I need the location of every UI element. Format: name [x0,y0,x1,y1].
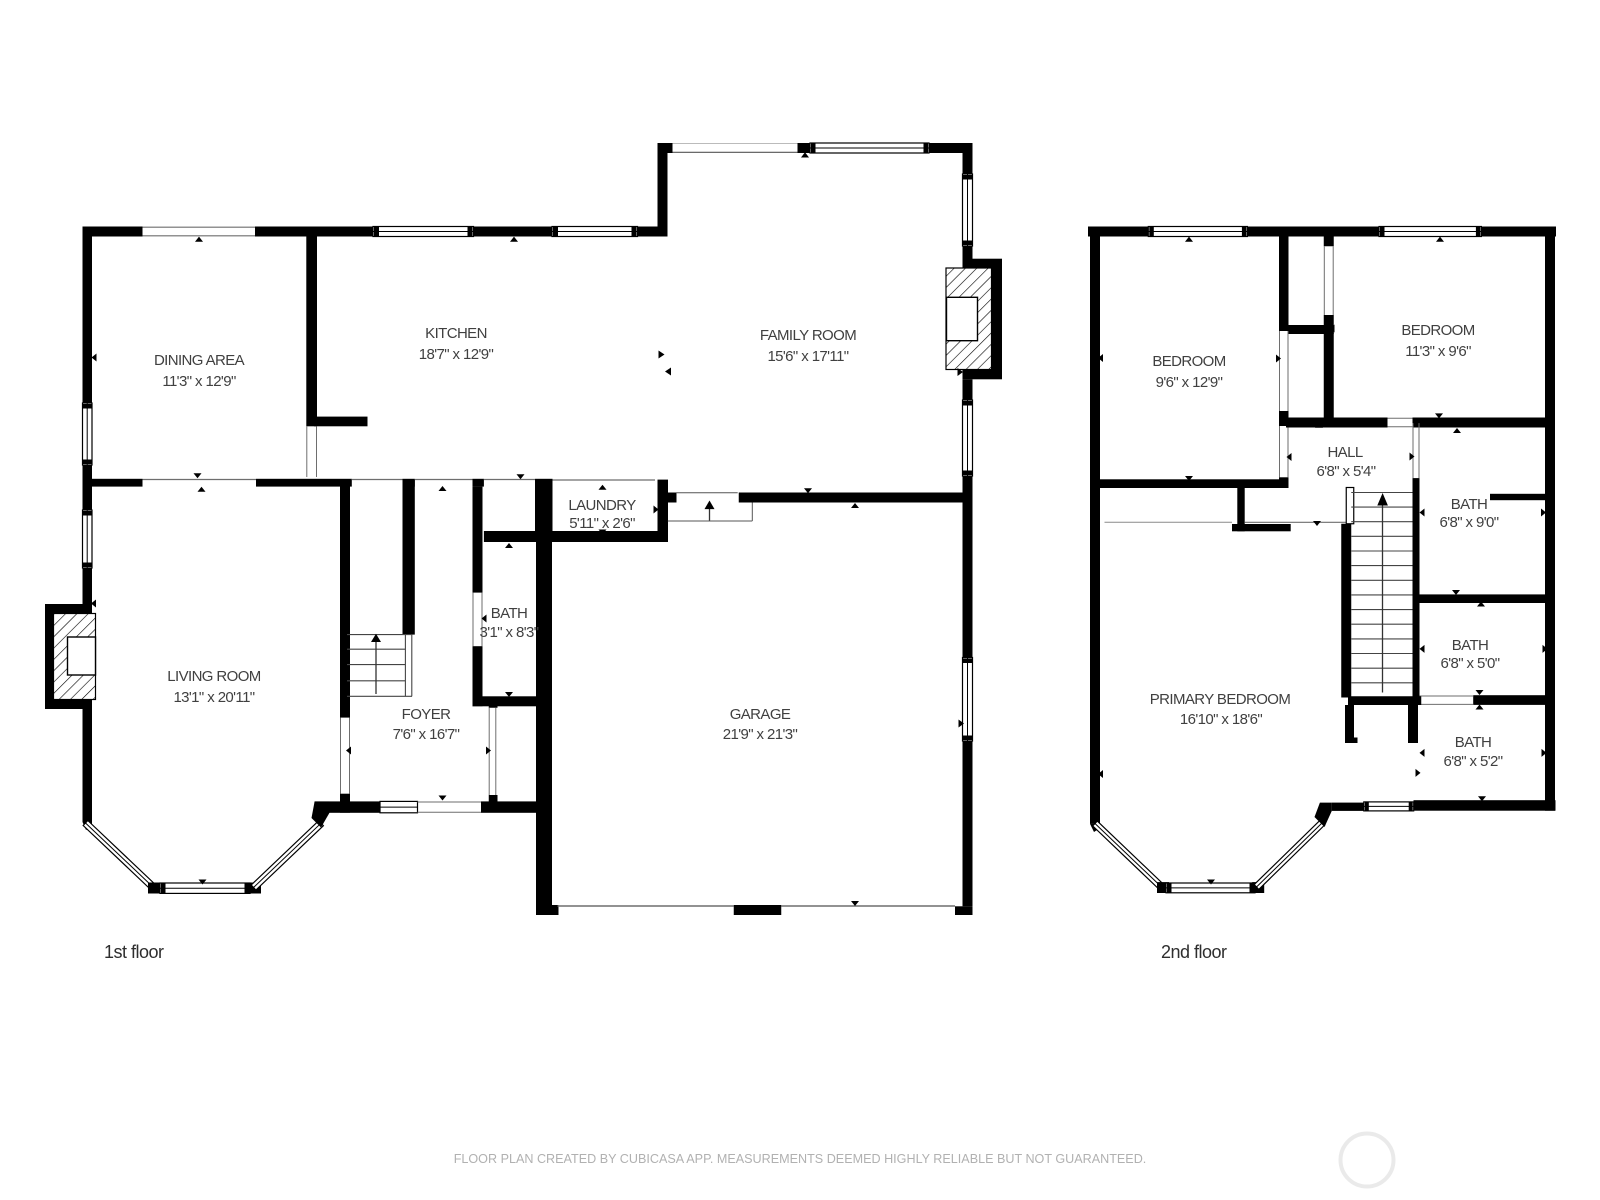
svg-text:7'6" x 16'7": 7'6" x 16'7" [393,726,460,743]
svg-text:6'8" x 5'0": 6'8" x 5'0" [1441,655,1500,672]
svg-text:15'6" x 17'11": 15'6" x 17'11" [767,348,848,365]
svg-text:BEDROOM: BEDROOM [1152,353,1225,370]
svg-text:FLOOR PLAN CREATED BY CUBICASA: FLOOR PLAN CREATED BY CUBICASA APP. MEAS… [454,1152,1147,1166]
svg-text:18'7" x 12'9": 18'7" x 12'9" [419,346,494,363]
svg-text:KITCHEN: KITCHEN [425,325,487,342]
svg-text:BATH: BATH [1455,734,1492,751]
svg-text:16'10" x 18'6": 16'10" x 18'6" [1180,711,1262,728]
svg-text:PRIMARY BEDROOM: PRIMARY BEDROOM [1150,691,1291,708]
svg-text:11'3" x 12'9": 11'3" x 12'9" [162,373,236,390]
svg-text:BATH: BATH [491,605,528,622]
svg-text:21'9" x 21'3": 21'9" x 21'3" [723,726,798,743]
svg-text:6'8" x 9'0": 6'8" x 9'0" [1440,514,1499,531]
svg-text:BATH: BATH [1451,496,1488,513]
svg-text:GARAGE: GARAGE [730,706,791,723]
svg-text:BATH: BATH [1452,637,1489,654]
svg-text:LIVING ROOM: LIVING ROOM [167,668,261,685]
svg-text:2nd floor: 2nd floor [1161,942,1227,962]
svg-text:1st floor: 1st floor [104,942,164,962]
svg-text:6'8" x 5'2": 6'8" x 5'2" [1444,753,1503,770]
svg-text:3'1" x 8'3": 3'1" x 8'3" [480,624,539,641]
svg-text:9'6" x 12'9": 9'6" x 12'9" [1156,374,1223,391]
svg-text:FOYER: FOYER [402,706,451,723]
svg-text:HALL: HALL [1327,444,1362,461]
svg-text:11'3" x 9'6": 11'3" x 9'6" [1405,343,1471,360]
svg-text:BEDROOM: BEDROOM [1401,322,1474,339]
svg-text:13'1" x 20'11": 13'1" x 20'11" [173,689,254,706]
svg-text:6'8" x 5'4": 6'8" x 5'4" [1317,463,1376,480]
svg-text:5'11" x 2'6": 5'11" x 2'6" [569,515,635,532]
svg-text:FAMILY ROOM: FAMILY ROOM [760,327,856,344]
svg-text:LAUNDRY: LAUNDRY [568,497,636,514]
svg-text:DINING AREA: DINING AREA [154,352,245,369]
